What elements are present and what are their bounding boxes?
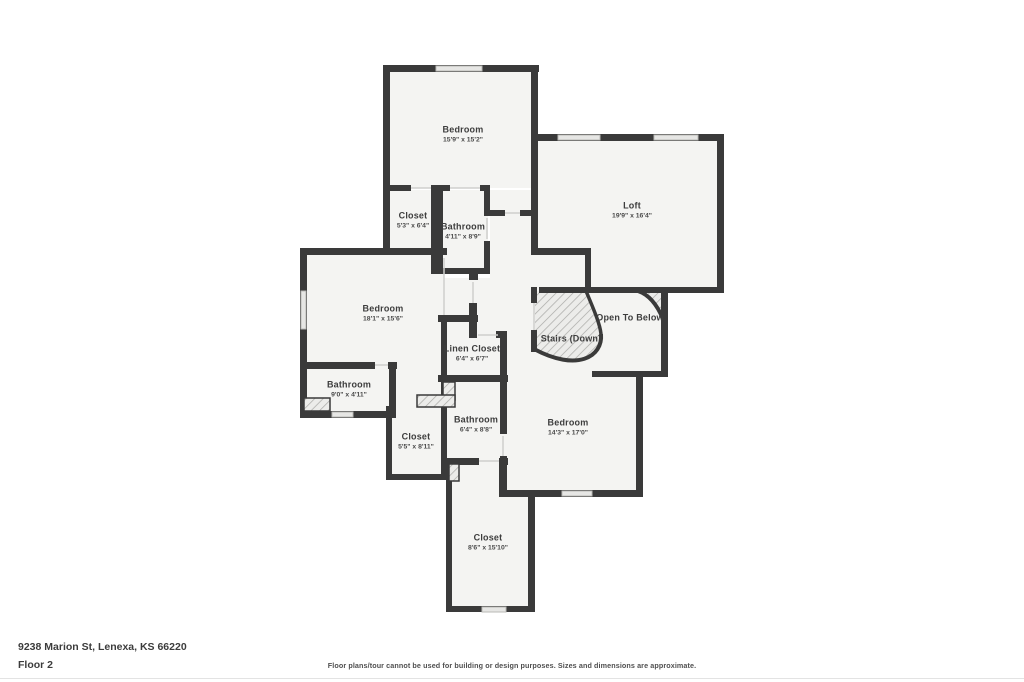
floorplan-page: Bedroom15'9" x 15'2"Loft19'9" x 16'4"Clo… xyxy=(0,0,1024,682)
floorplan-drawing xyxy=(0,0,1024,682)
bottom-divider xyxy=(0,678,1024,679)
footer-address: 9238 Marion St, Lenexa, KS 66220 xyxy=(18,641,187,653)
room-floors xyxy=(304,68,719,608)
footer-disclaimer: Floor plans/tour cannot be used for buil… xyxy=(0,661,1024,670)
